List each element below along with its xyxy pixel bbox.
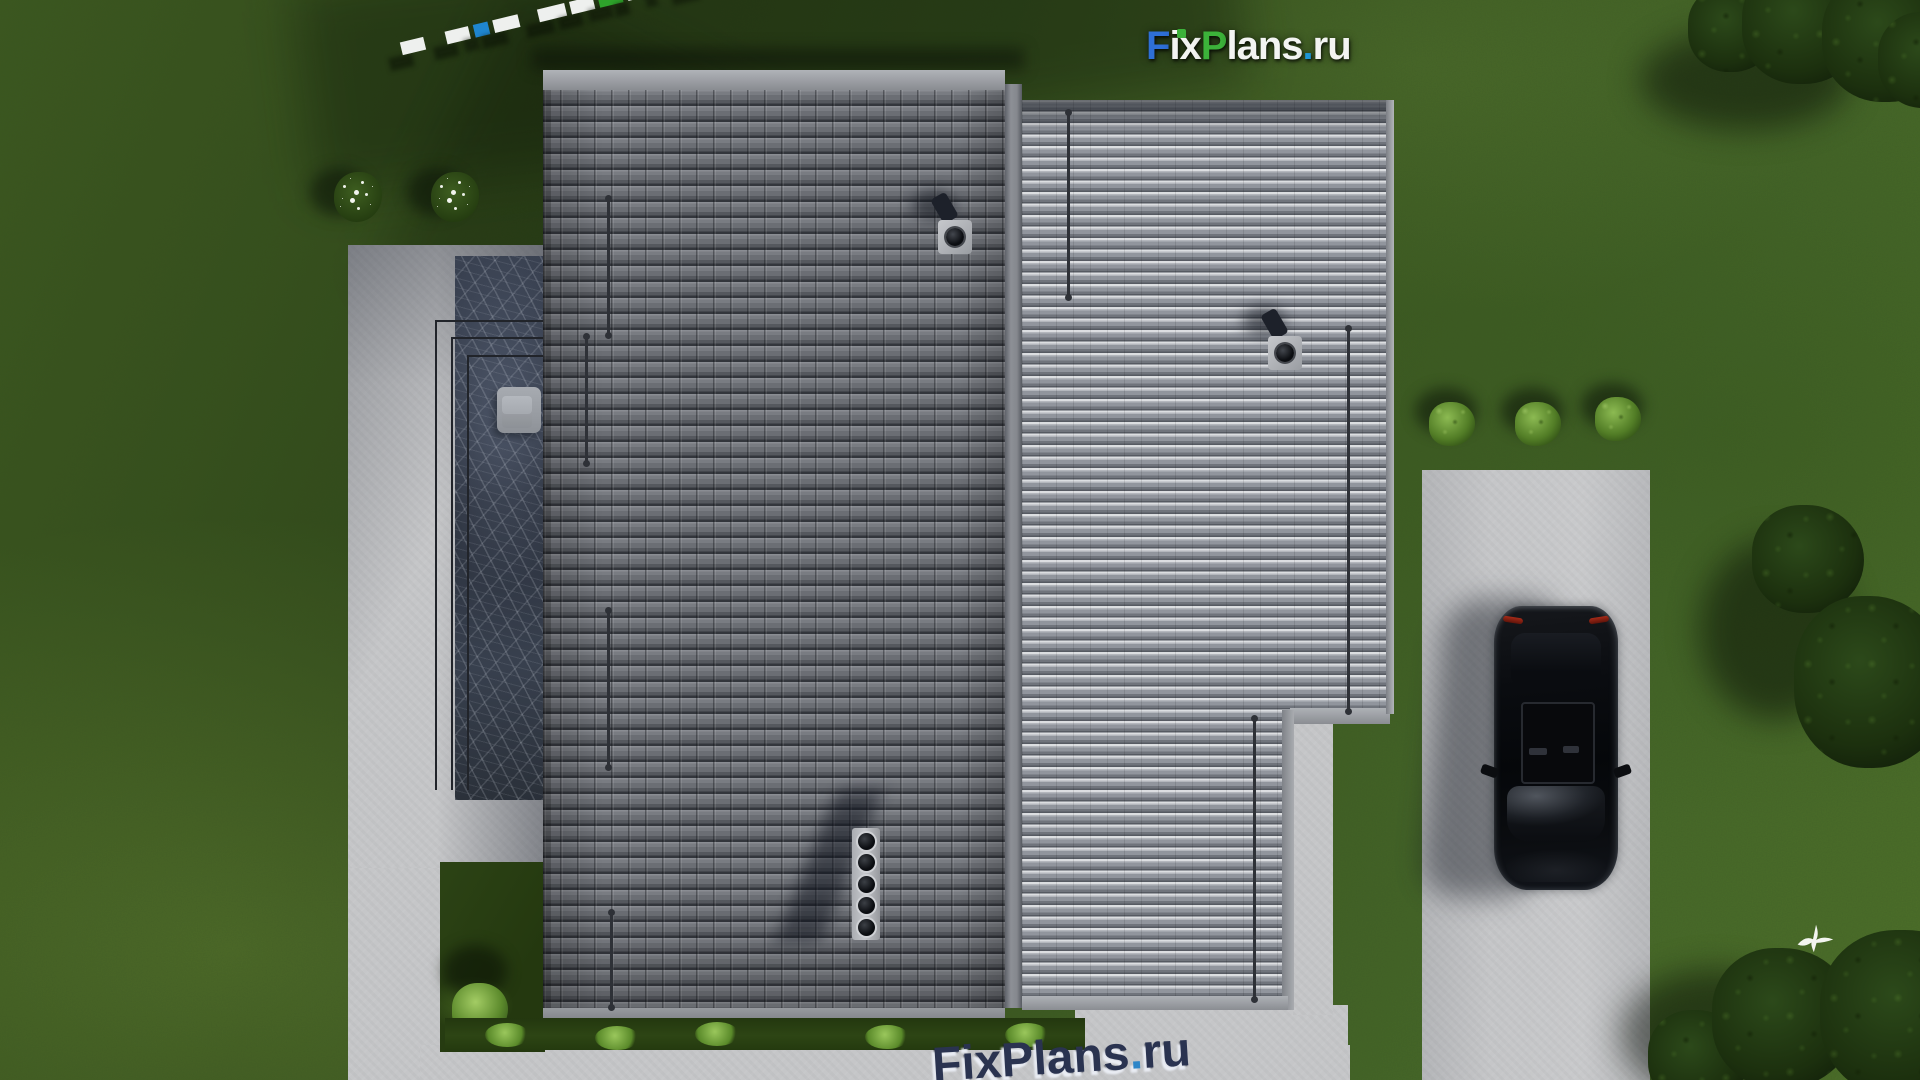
- tiled-roof-section: [543, 90, 1005, 1015]
- chimney-flue: [858, 833, 875, 850]
- scale-gap: [428, 32, 443, 47]
- car-rear-window: [1511, 633, 1601, 689]
- roof-vent: [1268, 336, 1302, 370]
- round-bush: [1429, 402, 1475, 446]
- car-sunroof: [1521, 702, 1595, 784]
- roof-fascia: [1290, 708, 1390, 724]
- house-cast-shadow: [532, 48, 1024, 70]
- lightning-conductor: [585, 336, 588, 464]
- logo-dot: .: [1303, 24, 1313, 68]
- lightning-conductor: [1067, 112, 1070, 298]
- tree: [1794, 596, 1920, 768]
- lightning-conductor: [610, 912, 613, 1008]
- logo-letters: lans: [1226, 24, 1302, 68]
- scale-segment: [444, 26, 470, 44]
- roof-vent: [938, 220, 972, 254]
- plant-tuft: [485, 1023, 529, 1047]
- car-hood: [1506, 822, 1606, 882]
- scale-gap: [522, 10, 535, 25]
- logo-letter: F: [1146, 24, 1169, 68]
- round-bush: [1595, 397, 1641, 441]
- scale-segment: [597, 0, 623, 7]
- bird-icon: [1793, 922, 1837, 956]
- logo-letters: ru: [1313, 24, 1351, 68]
- logo-i-dot: [1177, 29, 1186, 38]
- chimney-flue: [858, 919, 875, 936]
- plant-tuft: [695, 1022, 739, 1046]
- round-bush: [1515, 402, 1561, 446]
- taillight: [1503, 615, 1524, 624]
- aerial-house-render: FixPlans.ru FixPlans.ru: [0, 0, 1920, 1080]
- plant-tuft: [595, 1026, 639, 1050]
- scale-segment: [492, 14, 520, 33]
- scale-segment: [537, 3, 567, 22]
- outdoor-sofa: [497, 387, 541, 433]
- roof-fascia: [1282, 710, 1294, 1010]
- roof-fascia: [1022, 996, 1288, 1010]
- scale-segment: [569, 0, 595, 14]
- lightning-conductor: [607, 610, 610, 768]
- taillight: [1589, 615, 1610, 624]
- roof-fascia: [1386, 100, 1394, 714]
- logo-letter: P: [1201, 24, 1227, 68]
- scale-segment: [400, 36, 426, 54]
- plant-tuft: [865, 1025, 909, 1049]
- side-path: [1293, 723, 1333, 1015]
- lightning-conductor: [1347, 328, 1350, 712]
- lightning-conductor: [607, 198, 610, 336]
- scale-segment: [473, 21, 491, 37]
- roof-fascia: [543, 70, 1005, 90]
- chimney-flue: [858, 897, 875, 914]
- roof-ridge: [1005, 84, 1022, 1008]
- multi-flue-chimney: [852, 828, 880, 940]
- chimney-flue: [858, 854, 875, 871]
- black-car: [1494, 606, 1618, 890]
- lightning-conductor: [1253, 718, 1256, 1000]
- watermark-letters: ru: [1141, 1023, 1192, 1079]
- chimney-flue: [858, 876, 875, 893]
